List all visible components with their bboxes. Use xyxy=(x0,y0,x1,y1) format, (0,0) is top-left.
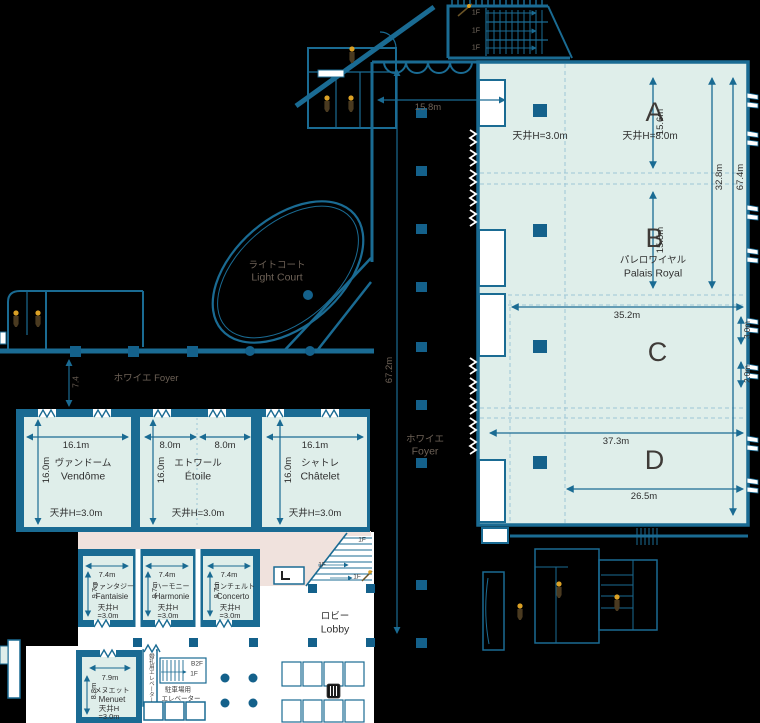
person-icon xyxy=(556,581,561,598)
ceiling-height-main: 天井H=8.0m xyxy=(622,132,677,143)
person-icon xyxy=(35,310,40,327)
person-icon xyxy=(349,46,354,63)
dim-b-depth: 15.5m xyxy=(656,227,666,253)
menuet-ceiling-2: =3.0m xyxy=(98,713,119,721)
concerto-ja: コンチェルト xyxy=(213,583,255,590)
etoile-depth: 16.0m xyxy=(157,457,167,483)
revolving-door-icon xyxy=(327,684,340,698)
menuet-width: 7.9m xyxy=(102,674,119,682)
corridor-foyer-ja: ホワイエ xyxy=(406,435,444,445)
chatelet-depth: 16.0m xyxy=(284,457,294,483)
dim-west-foyer-depth: 7.4 xyxy=(72,376,81,388)
dim-ab-depth: 32.8m xyxy=(715,164,725,190)
person-icon xyxy=(324,95,329,112)
dim-a-depth: 15.6m xyxy=(656,109,666,135)
f1-label: 1F xyxy=(353,575,361,582)
wedding-elevator-label: 婚礼用エレベーター xyxy=(147,653,153,703)
chatelet-en: Châtelet xyxy=(300,471,339,482)
chatelet-width: 16.1m xyxy=(302,441,328,451)
section-c-label: C xyxy=(648,338,669,366)
vendome-en: Vendôme xyxy=(61,471,105,482)
b2f-label: B2F xyxy=(191,662,203,669)
etoile-ceiling: 天井H=3.0m xyxy=(172,509,225,519)
concerto-en: Concerto xyxy=(217,593,249,601)
fantaisie-ja: ファンタジー xyxy=(92,583,134,590)
dim-c-width: 35.2m xyxy=(614,311,640,321)
vendome-width: 16.1m xyxy=(63,441,89,451)
harmonie-width: 7.4m xyxy=(159,571,176,579)
parking-elevator-line1: 駐車場用 xyxy=(165,688,191,695)
elevator-cars xyxy=(144,702,205,720)
person-icon xyxy=(13,310,18,327)
lobby-en: Lobby xyxy=(321,624,350,635)
palais-royal-name-en: Palais Royal xyxy=(624,268,682,279)
dim-full-depth: 67.4m xyxy=(736,164,746,190)
light-court-en: Light Court xyxy=(251,272,302,283)
fantaisie-en: Fantaisie xyxy=(96,593,128,601)
concerto-width: 7.4m xyxy=(221,571,238,579)
harmonie-ceiling-2: =3.0m xyxy=(157,612,178,620)
etoile-width-left: 8.0m xyxy=(159,441,180,451)
fantaisie-width: 7.4m xyxy=(99,571,116,579)
harmonie-en: Harmonie xyxy=(155,593,190,601)
dim-d-lower-width: 26.5m xyxy=(631,492,657,502)
person-icon xyxy=(614,594,619,611)
dim-entrance-width: 15.8m xyxy=(415,103,441,113)
f1-label: 1F xyxy=(318,563,326,570)
chatelet-ceiling: 天井H=3.0m xyxy=(289,509,342,519)
corridor-foyer-en: Foyer xyxy=(412,446,439,457)
west-foyer-label: ホワイエ Foyer xyxy=(114,374,179,384)
fantaisie-ceiling-2: =3.0m xyxy=(97,612,118,620)
person-icon xyxy=(348,95,353,112)
person-icon xyxy=(517,603,522,620)
etoile-en: Étoile xyxy=(185,471,211,482)
dim-side-upper: 3.0m xyxy=(744,321,752,339)
etoile-ja: エトワール xyxy=(174,459,222,469)
f1-label: 1F xyxy=(190,672,198,679)
light-court-ja: ライトコート xyxy=(248,261,305,271)
parking-elevator-line2: エレベーター xyxy=(162,697,201,704)
palais-royal-name-ja: パレロワイヤル xyxy=(620,256,686,266)
f1-label: 1F xyxy=(472,27,480,34)
f1-label: 1F xyxy=(472,9,480,16)
etoile-width-right: 8.0m xyxy=(214,441,235,451)
f1-label: 1F xyxy=(472,44,480,51)
harmonie-ja: ハーモニー xyxy=(155,583,190,590)
dim-d-width: 37.3m xyxy=(603,437,629,447)
section-d-label: D xyxy=(645,446,666,474)
concerto-ceiling-2: =3.0m xyxy=(219,612,240,620)
menuet-ja: メヌエット xyxy=(95,687,130,694)
chatelet-ja: シャトレ xyxy=(301,459,339,469)
f1-label: 1F xyxy=(358,538,366,545)
ceiling-height-side: 天井H=3.0m xyxy=(512,132,567,143)
service-counter xyxy=(274,567,304,584)
dim-side-lower: 2.0m xyxy=(744,365,752,383)
menuet-en: Menuet xyxy=(99,696,126,704)
vendome-ja: ヴァンドーム xyxy=(55,459,112,469)
vendome-depth: 16.0m xyxy=(42,457,52,483)
lobby-ja: ロビー xyxy=(321,612,350,622)
floor-plan: A B C D 天井H=3.0m 天井H=8.0m パレロワイヤル Palais… xyxy=(0,0,760,723)
dim-corridor-length: 67.2m xyxy=(385,357,395,383)
vendome-ceiling: 天井H=3.0m xyxy=(50,509,103,519)
